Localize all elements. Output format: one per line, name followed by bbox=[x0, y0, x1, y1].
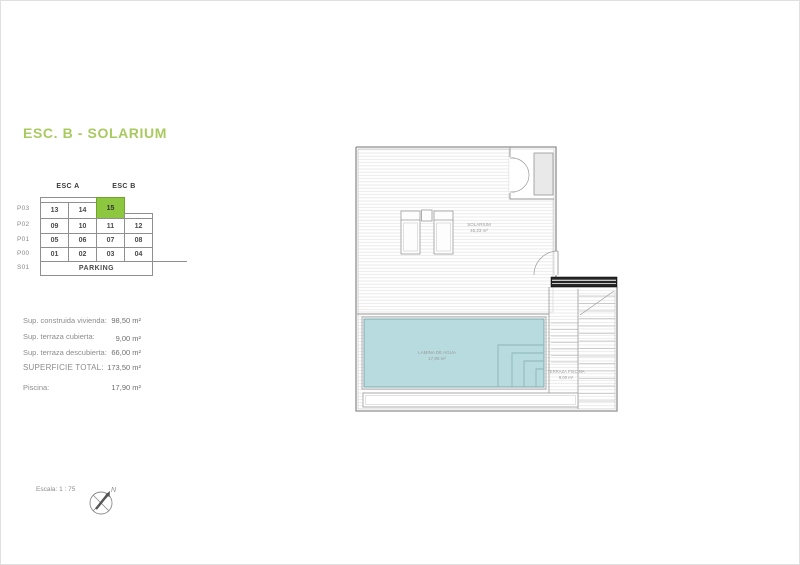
solarium-area-label: 46,23 m² bbox=[470, 228, 488, 233]
unit-cell-11: 11 bbox=[96, 218, 125, 234]
unit-cell-04: 04 bbox=[124, 247, 153, 262]
north-label: N bbox=[111, 487, 117, 494]
double-door-icon bbox=[510, 157, 529, 193]
measurement-value: 98,50 m² bbox=[96, 316, 141, 325]
unit-cell-01: 01 bbox=[40, 247, 69, 262]
unit-cell-07: 07 bbox=[96, 233, 125, 248]
ground-line bbox=[153, 261, 187, 262]
unit-cell-08: 08 bbox=[124, 233, 153, 248]
row-label-p03: P03 bbox=[17, 205, 29, 212]
measurement-label: Sup. construida vivienda: bbox=[23, 316, 107, 325]
row-label-s01: S01 bbox=[17, 264, 29, 271]
parking-cell: PARKING bbox=[40, 261, 153, 276]
measurement-value: 173,50 m² bbox=[96, 363, 141, 372]
unit-cell-02: 02 bbox=[68, 247, 97, 262]
unit-cell-10: 10 bbox=[68, 218, 97, 234]
measurement-value: 66,00 m² bbox=[96, 348, 141, 357]
unit-cell-05: 05 bbox=[40, 233, 69, 248]
pool: LAMINA DE AGUA 17,90 m² bbox=[362, 317, 546, 389]
north-compass-icon: N bbox=[85, 483, 121, 519]
measurement-label: Sup. terraza cubierta: bbox=[23, 332, 95, 341]
page-title: ESC. B - SOLARIUM bbox=[23, 125, 167, 141]
unit-cell-09: 09 bbox=[40, 218, 69, 234]
table-header-esc-b: ESC B bbox=[96, 183, 152, 190]
solarium-deck bbox=[358, 149, 553, 312]
unit-cell-14: 14 bbox=[68, 202, 97, 219]
solarium-label: SOLARIUM bbox=[467, 222, 491, 227]
pool-edge-band bbox=[363, 393, 578, 407]
pool-terrace-label: TERRAZA PISCINA bbox=[547, 369, 584, 374]
measurement-label-total: SUPERFICIE TOTAL: bbox=[23, 363, 104, 372]
pool-terrace-area-label: 9,00 m² bbox=[559, 375, 574, 380]
pool-label: LAMINA DE AGUA bbox=[418, 350, 456, 355]
measurement-value: 17,90 m² bbox=[96, 383, 141, 392]
table-header-esc-a: ESC A bbox=[40, 183, 96, 190]
stair-bulkhead bbox=[534, 153, 553, 195]
pool-area-label: 17,90 m² bbox=[428, 356, 446, 361]
floor-plan: LAMINA DE AGUA 17,90 m² SOLARIUM 46,23 m… bbox=[341, 139, 631, 429]
measurement-label: Sup. terraza descubierta: bbox=[23, 348, 107, 357]
measurement-value: 9,00 m² bbox=[96, 334, 141, 343]
plan-sheet: ESC. B - SOLARIUM ESC A ESC B P03 P02 P0… bbox=[0, 0, 800, 565]
unit-cell-12: 12 bbox=[124, 218, 153, 234]
scale-note: Escala: 1 : 75 bbox=[36, 486, 75, 493]
row-label-p02: P02 bbox=[17, 221, 29, 228]
pergola-beam bbox=[551, 277, 617, 287]
unit-cell-03: 03 bbox=[96, 247, 125, 262]
side-table bbox=[422, 210, 433, 221]
row-label-p01: P01 bbox=[17, 236, 29, 243]
unit-cell-13: 13 bbox=[40, 202, 69, 219]
unit-cell-15-highlighted: 15 bbox=[96, 197, 125, 219]
measurement-label-pool: Piscina: bbox=[23, 383, 49, 392]
row-label-p00: P00 bbox=[17, 250, 29, 257]
unit-cell-06: 06 bbox=[68, 233, 97, 248]
